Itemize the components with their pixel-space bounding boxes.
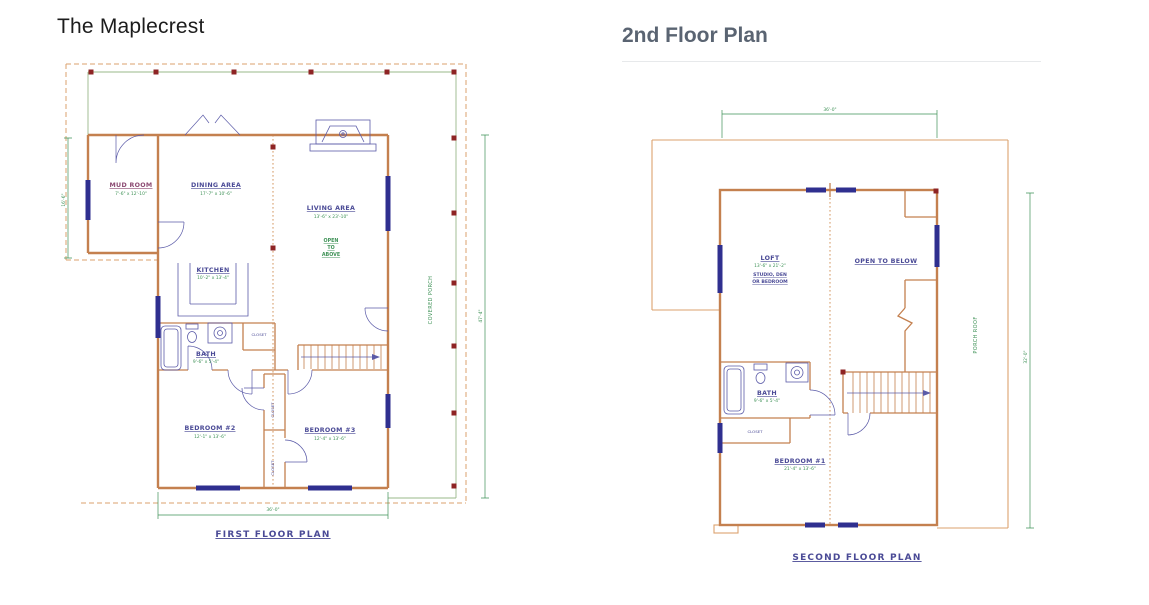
bedroom3-dims: 12'-4" x 13'-6" — [314, 436, 346, 442]
bath-dims: 9'-6" x 5'-4" — [193, 359, 219, 365]
page: { "first_floor": { "title": "The Maplecr… — [0, 0, 1149, 605]
closet-label-vertical-1: CLOSET — [270, 402, 275, 418]
porch-roof-label: PORCH ROOF — [973, 316, 979, 353]
first-floor-plan-drawing: 16'-6" 36'-0" 47'-4" MUD ROOM 7'-6" x 12… — [58, 58, 520, 563]
second-floor-heading: 2nd Floor Plan — [622, 24, 768, 48]
kitchen-label: KITCHEN — [196, 267, 229, 274]
bedroom1-dims: 21'-4" x 13'-6" — [784, 466, 816, 472]
dim-right: 47'-4" — [478, 309, 484, 322]
porch-posts — [89, 70, 457, 489]
bath-label: BATH — [757, 390, 777, 397]
porch-overhang-dashed-lines — [66, 64, 466, 503]
closet-label-vertical-2: CLOSET — [270, 460, 275, 476]
loft-note-line1: STUDIO, DEN — [753, 272, 787, 278]
open-to-above-line1: OPEN — [324, 238, 339, 244]
bath-label: BATH — [196, 351, 216, 358]
second-floor-plan-title: SECOND FLOOR PLAN — [792, 553, 921, 563]
living-area-dims: 13'-6" x 23'-10" — [314, 214, 349, 220]
page-title: The Maplecrest — [57, 15, 205, 39]
kitchen-dims: 10'-2" x 13'-4" — [197, 275, 229, 281]
dim-left: 16'-6" — [61, 193, 67, 206]
stairs — [847, 372, 931, 413]
mud-room-label: MUD ROOM — [109, 182, 152, 189]
covered-porch-label: COVERED PORCH — [428, 276, 434, 325]
room-labels: LOFT 13'-6" x 21'-2" STUDIO, DEN OR BEDR… — [747, 255, 979, 472]
open-to-below-label: OPEN TO BELOW — [855, 258, 918, 265]
bedroom3-label: BEDROOM #3 — [305, 427, 356, 434]
living-area-label: LIVING AREA — [307, 205, 355, 212]
loft-dims: 13'-6" x 21'-2" — [754, 263, 786, 269]
bath-dims: 9'-6" x 5'-4" — [754, 398, 780, 404]
bedroom2-dims: 12'-1" x 13'-6" — [194, 434, 226, 440]
dimension-lines: 36'-0" 32'-0" — [722, 107, 1034, 528]
section-divider — [622, 61, 1041, 62]
bath-fixtures — [724, 363, 808, 414]
closet-label: CLOSET — [747, 429, 763, 434]
first-floor-plan-title: FIRST FLOOR PLAN — [215, 530, 330, 540]
loft-label: LOFT — [761, 255, 780, 262]
dining-area-label: DINING AREA — [191, 182, 241, 189]
mud-room-dims: 7'-6" x 12'-10" — [115, 191, 147, 197]
dim-right: 32'-0" — [1023, 350, 1029, 363]
windows — [86, 176, 391, 491]
open-to-above-line3: ABOVE — [322, 252, 340, 258]
interior-walls — [720, 190, 937, 443]
open-to-above-line2: TO — [327, 245, 334, 251]
dim-bottom: 36'-0" — [266, 507, 279, 513]
bedroom2-label: BEDROOM #2 — [185, 425, 236, 432]
dining-area-dims: 17'-7" x 10'-6" — [200, 191, 232, 197]
dim-top: 36'-0" — [823, 107, 836, 113]
bedroom1-label: BEDROOM #1 — [775, 458, 826, 465]
second-floor-plan-drawing: 36'-0" 32'-0" LOFT 13'-6" x 21'-2" STUDI… — [640, 95, 1072, 587]
doors — [810, 390, 870, 435]
stairs — [301, 345, 381, 369]
loft-note-line2: OR BEDROOM — [752, 279, 788, 285]
windows — [718, 188, 940, 528]
closet-label: CLOSET — [251, 332, 267, 337]
